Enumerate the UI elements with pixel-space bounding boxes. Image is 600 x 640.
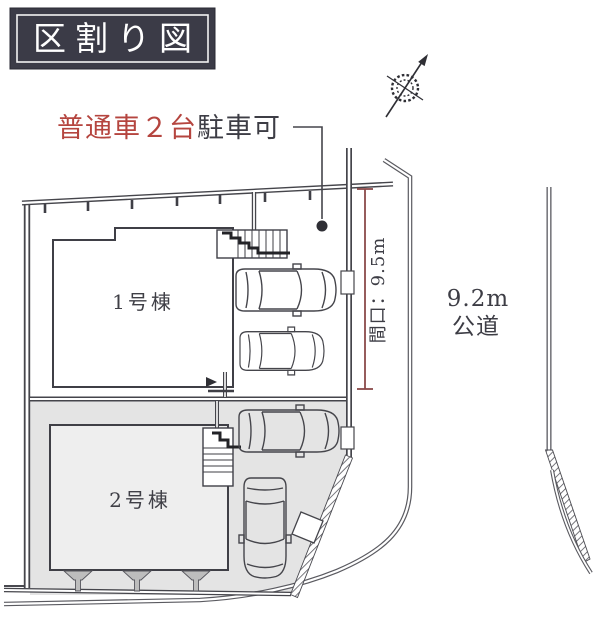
parking-note-dark: 駐車可 — [197, 113, 281, 144]
parking-leader — [293, 127, 328, 232]
diagram-header: 区割り図 — [10, 8, 215, 69]
stairs-building1 — [217, 230, 290, 258]
frontage-label: 間口：9.5m — [368, 237, 389, 344]
building-1-label: 1号棟 — [112, 290, 174, 314]
building-2-label: 2号棟 — [109, 488, 171, 512]
building-1: 1号棟 — [53, 228, 233, 387]
site-plan-canvas: 1号棟 2号棟 — [0, 0, 600, 640]
building-2: 2号棟 — [50, 425, 228, 570]
north-arrow-icon — [386, 54, 428, 117]
road-type-label: 公道 — [452, 314, 500, 340]
car-icon-2 — [240, 327, 324, 375]
parking-note: 普通車２台駐車可 — [57, 113, 281, 144]
gate-opening-plot2 — [341, 427, 354, 449]
parking-note-red: 普通車２台 — [57, 113, 197, 144]
road-width-label: 9.2m — [447, 286, 509, 312]
road-embankment-hatch — [546, 450, 591, 563]
page-title: 区割り図 — [33, 19, 201, 58]
car-icon-1 — [236, 264, 336, 316]
gate-opening-plot1 — [341, 271, 354, 294]
plot-layout-diagram: 1号棟 2号棟 — [0, 0, 600, 640]
